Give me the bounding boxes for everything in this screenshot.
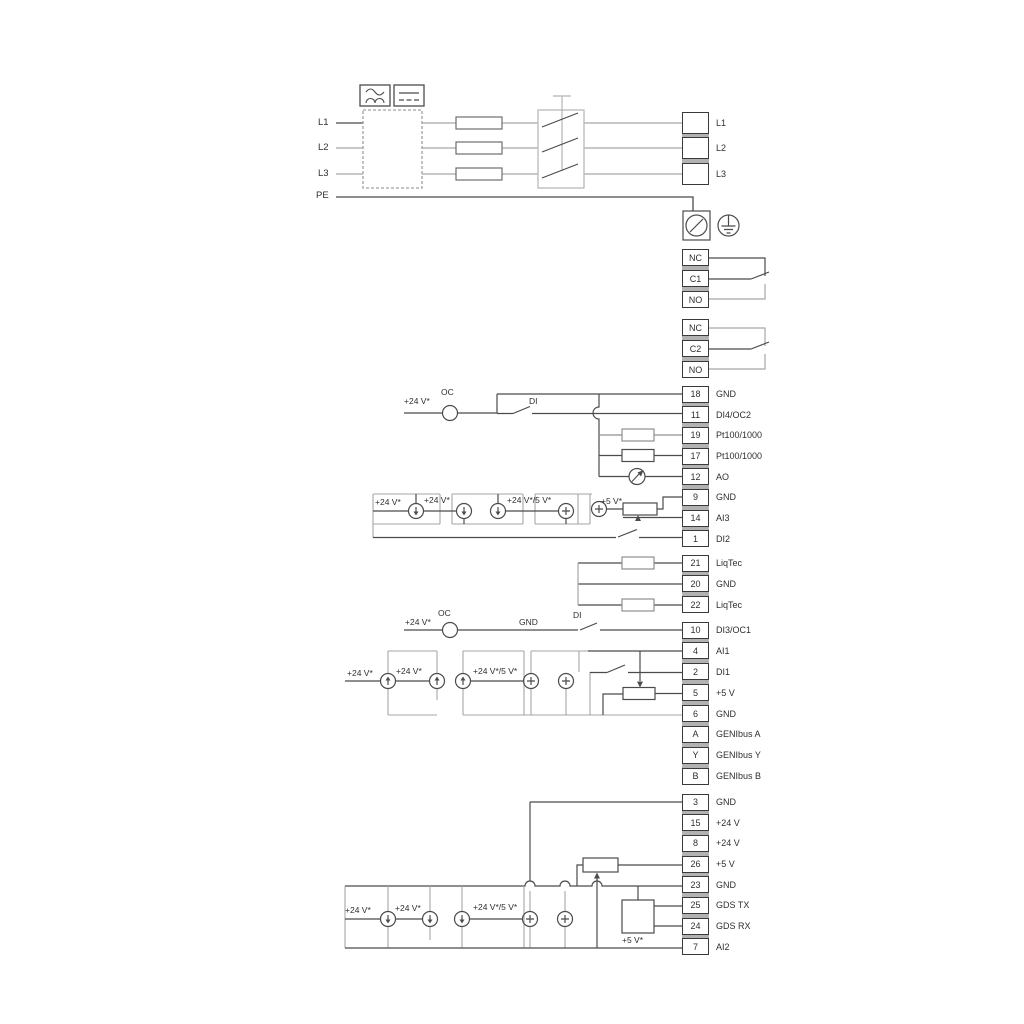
terminal-row: 18 GND <box>682 386 709 403</box>
wiring-svg <box>0 0 1024 1024</box>
supply-label: +24 V* <box>347 668 373 678</box>
power-input-label-pe: PE <box>316 190 329 201</box>
terminal-row: 9 GND <box>682 489 709 506</box>
terminal-box: 14 <box>682 510 709 527</box>
terminal-box: 17 <box>682 448 709 465</box>
gnd23-wire <box>345 881 682 886</box>
terminal-label: GENIbus A <box>716 729 761 739</box>
terminal-box: 23 <box>682 876 709 893</box>
terminal-row: 3 GND <box>682 794 709 811</box>
terminal-row: 26 +5 V <box>682 856 709 873</box>
terminal-box: C2 <box>682 340 709 357</box>
terminal-label: L2 <box>716 143 726 153</box>
terminal-box: 15 <box>682 814 709 831</box>
terminal-row: A GENIbus A <box>682 726 709 743</box>
terminal-label: GENIbus B <box>716 771 761 781</box>
main-switch-symbol <box>538 96 584 188</box>
wiring-diagram: L1 L2 L3 PE +24 V* OC DI +24 V* +24 V* +… <box>0 0 1024 1024</box>
liqtec-sensor-wiring <box>578 557 682 611</box>
terminal-row: C2 <box>682 340 709 357</box>
terminal-label: GDS TX <box>716 900 749 910</box>
terminal-row: 21 LiqTec <box>682 555 709 572</box>
terminal-row: 14 AI3 <box>682 510 709 527</box>
terminal-box: 3 <box>682 794 709 811</box>
terminal-row: Y GENIbus Y <box>682 747 709 764</box>
terminal-label: DI2 <box>716 534 730 544</box>
terminal-row: L1 <box>682 112 709 134</box>
terminal-box: 1 <box>682 530 709 547</box>
terminal-box: 26 <box>682 856 709 873</box>
terminal-label: AI1 <box>716 646 730 656</box>
pe-screw-terminal-icon <box>683 211 710 240</box>
terminal-row: 6 GND <box>682 705 709 722</box>
terminal-row: 4 AI1 <box>682 642 709 659</box>
supply-label: +24 V* <box>396 666 422 676</box>
supply-label: +24 V*/5 V* <box>507 495 551 505</box>
terminal-label: GND <box>716 709 736 719</box>
terminal-label: L3 <box>716 169 726 179</box>
terminal-box: 21 <box>682 555 709 572</box>
terminal-box: B <box>682 768 709 785</box>
analog-output-meter-icon <box>599 469 682 485</box>
terminal-row: 20 GND <box>682 575 709 592</box>
terminal-box: NO <box>682 361 709 378</box>
terminal-row: 19 Pt100/1000 <box>682 427 709 444</box>
power-input-label-l2: L2 <box>318 142 329 153</box>
terminal-row: L2 <box>682 137 709 159</box>
terminal-box <box>682 112 709 134</box>
oc-label: OC <box>438 608 451 618</box>
gnd3-wire <box>530 802 682 881</box>
terminal-group-io3: 3 GND 15 +24 V 8 +24 V 26 +5 V 23 GND 25… <box>682 794 709 956</box>
terminal-box: A <box>682 726 709 743</box>
terminal-box: NC <box>682 249 709 266</box>
terminal-row: NO <box>682 291 709 308</box>
rfi-filter-box <box>363 110 422 188</box>
terminal-label: +5 V <box>716 688 735 698</box>
terminal-box: 20 <box>682 575 709 592</box>
terminal-box: Y <box>682 747 709 764</box>
ai3-source-brackets <box>373 494 592 538</box>
terminal-row: 5 +5 V <box>682 684 709 701</box>
terminal-box: 10 <box>682 622 709 639</box>
terminal-box: 11 <box>682 406 709 423</box>
terminal-row: 17 Pt100/1000 <box>682 448 709 465</box>
power-input-label-l1: L1 <box>318 117 329 128</box>
supply-label: +24 V* <box>404 396 430 406</box>
supply-label: +5 V* <box>622 935 643 945</box>
terminal-row: L3 <box>682 163 709 185</box>
oc-label: OC <box>441 387 454 397</box>
ai2-signal-sources <box>345 912 573 927</box>
di2-switch-wiring <box>373 530 682 538</box>
di1-switch-wiring <box>590 665 682 673</box>
open-collector-icon <box>443 623 458 638</box>
terminal-row: 23 GND <box>682 876 709 893</box>
supply-label: +24 V*/5 V* <box>473 902 517 912</box>
ac-icon <box>360 85 390 106</box>
terminal-label: L1 <box>716 118 726 128</box>
terminal-box <box>682 137 709 159</box>
terminal-label: GDS RX <box>716 921 751 931</box>
terminal-label: AI3 <box>716 513 730 523</box>
terminal-row: NC <box>682 249 709 266</box>
terminal-row: NC <box>682 319 709 336</box>
terminal-row: C1 <box>682 270 709 287</box>
terminal-box: 9 <box>682 489 709 506</box>
terminal-label: DI4/OC2 <box>716 410 751 420</box>
terminal-box: 8 <box>682 835 709 852</box>
terminal-label: GND <box>716 579 736 589</box>
supply-label: +24 V* <box>345 905 371 915</box>
terminal-label: LiqTec <box>716 558 742 568</box>
terminal-group-relay1: NC C1 NO <box>682 249 709 308</box>
terminal-label: DI3/OC1 <box>716 625 751 635</box>
terminal-row: 12 AO <box>682 468 709 485</box>
terminal-box <box>682 163 709 185</box>
terminal-row: 25 GDS TX <box>682 897 709 914</box>
di4-oc2-wiring <box>404 394 682 421</box>
terminal-row: 15 +24 V <box>682 814 709 831</box>
terminal-row: B GENIbus B <box>682 768 709 785</box>
power-input-wires <box>336 123 693 211</box>
terminal-row: 2 DI1 <box>682 663 709 680</box>
sensor-common-wire <box>593 394 599 477</box>
terminal-box: 6 <box>682 705 709 722</box>
terminal-box: NO <box>682 291 709 308</box>
terminal-label: +5 V <box>716 859 735 869</box>
relay1-contact-symbol <box>709 258 769 299</box>
terminal-group-io2: 10 DI3/OC1 4 AI1 2 DI1 5 +5 V 6 GND A GE… <box>682 622 709 785</box>
power-input-label-l3: L3 <box>318 168 329 179</box>
terminal-label: +24 V <box>716 838 740 848</box>
terminal-label: Pt100/1000 <box>716 430 762 440</box>
gnd-label: GND <box>519 617 538 627</box>
terminal-group-liqtec: 21 LiqTec 20 GND 22 LiqTec <box>682 555 709 614</box>
terminal-row: 1 DI2 <box>682 530 709 547</box>
di-label: DI <box>529 396 538 406</box>
supply-label: +5 V* <box>601 496 622 506</box>
supply-label: +24 V* <box>375 497 401 507</box>
terminal-box: 12 <box>682 468 709 485</box>
di3-oc1-wiring <box>404 623 682 638</box>
supply-label: +24 V* <box>424 495 450 505</box>
terminal-row: 8 +24 V <box>682 835 709 852</box>
terminal-label: +24 V <box>716 818 740 828</box>
terminal-box: 19 <box>682 427 709 444</box>
pt100-sensor-19 <box>599 429 682 441</box>
earth-ground-icon <box>718 215 739 237</box>
terminal-label: Pt100/1000 <box>716 451 762 461</box>
terminal-row: 22 LiqTec <box>682 596 709 613</box>
ai3-signal-sources <box>373 494 607 524</box>
terminal-row: NO <box>682 361 709 378</box>
dc-icon <box>394 85 424 106</box>
terminal-group-relay2: NC C2 NO <box>682 319 709 378</box>
terminal-box: C1 <box>682 270 709 287</box>
pt100-sensor-17 <box>599 450 682 462</box>
di-label: DI <box>573 610 582 620</box>
terminal-group-power-out: L1 L2 L3 <box>682 112 709 185</box>
terminal-label: GENIbus Y <box>716 750 761 760</box>
terminal-box: 2 <box>682 663 709 680</box>
terminal-box: 7 <box>682 938 709 955</box>
supply-label: +24 V* <box>395 903 421 913</box>
terminal-box: 24 <box>682 918 709 935</box>
terminal-label: GND <box>716 389 736 399</box>
terminal-box: 18 <box>682 386 709 403</box>
terminal-box: 5 <box>682 684 709 701</box>
relay2-contact-symbol <box>709 328 769 369</box>
terminal-label: AI2 <box>716 942 730 952</box>
terminal-box: 25 <box>682 897 709 914</box>
gds-sensor-module <box>622 886 682 933</box>
terminal-row: 24 GDS RX <box>682 918 709 935</box>
fuse-symbols <box>456 117 502 180</box>
terminal-label: GND <box>716 492 736 502</box>
terminal-row: 10 DI3/OC1 <box>682 622 709 639</box>
terminal-group-io1: 18 GND 11 DI4/OC2 19 Pt100/1000 17 Pt100… <box>682 386 709 548</box>
terminal-box: 22 <box>682 596 709 613</box>
supply-label: +24 V*/5 V* <box>473 666 517 676</box>
terminal-row: 7 AI2 <box>682 938 709 955</box>
ai1-setpoint-potentiometer <box>588 651 682 715</box>
terminal-label: GND <box>716 797 736 807</box>
terminal-box: NC <box>682 319 709 336</box>
pe-wire <box>336 197 693 211</box>
ai1-signal-sources <box>345 674 574 689</box>
terminal-label: AO <box>716 472 729 482</box>
open-collector-icon <box>443 406 458 421</box>
terminal-row: 11 DI4/OC2 <box>682 406 709 423</box>
terminal-label: LiqTec <box>716 600 742 610</box>
terminal-box: 4 <box>682 642 709 659</box>
terminal-label: DI1 <box>716 667 730 677</box>
terminal-label: GND <box>716 880 736 890</box>
supply-label: +24 V* <box>405 617 431 627</box>
